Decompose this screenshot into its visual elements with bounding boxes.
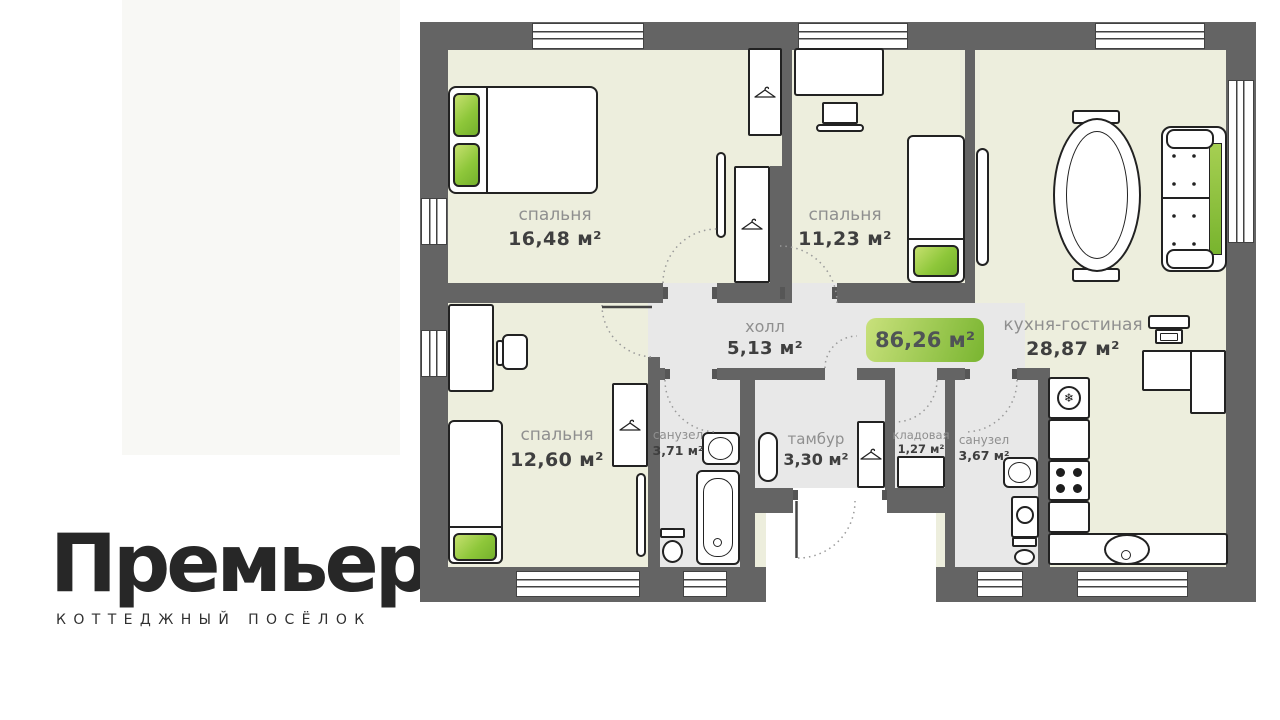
storage-shelf [897,456,945,488]
corner-cabinet [1190,350,1226,414]
room-area-vestibule: 3,30 м² [766,450,866,470]
sofa-armrest [1166,129,1214,149]
sofa-seat-divider [1163,197,1209,199]
doorway-floor [665,368,717,380]
door-post-marker [1012,369,1017,379]
pillow [453,93,480,137]
room-label-kitchen-living: кухня-гостиная [978,315,1168,336]
wall-segment [965,50,975,283]
room-area-kitchen-living: 28,87 м² [978,338,1168,362]
room-area-bedroom-top-left: 16,48 м² [480,228,630,252]
bed-divider [486,88,488,192]
window [421,198,447,245]
bed-divider [450,526,501,528]
room-label-bedroom-top-left: спальня [480,205,630,226]
room-label-bathroom-left: санузел [633,428,723,443]
sofa-back-cushion [1209,143,1222,255]
pillow [453,143,480,187]
page: Премьер КОТТЕДЖНЫЙ ПОСЁЛОК [0,0,1280,720]
mirror [716,152,726,238]
bench-chair [976,148,989,266]
wall-segment [782,50,792,168]
dining-table-inner [1066,131,1128,259]
room-label-bedroom-top-middle: спальня [770,205,920,226]
stove-burner-icon [1073,484,1082,493]
hanger-icon [740,216,764,232]
wall-segment [648,357,660,567]
wall-segment [448,283,663,303]
floor-plan: ❄ спальня 16,48 м² спальня 11,23 м² спал… [420,22,1256,602]
door-post-marker [712,369,717,379]
toilet-tank [1012,537,1037,547]
room-label-hall: холл [715,317,815,337]
snowflake-icon: ❄ [1057,386,1081,410]
wall-segment [887,488,950,513]
window [798,23,908,49]
stove-burner-icon [1056,484,1065,493]
entrance-porch [766,513,936,602]
toilet-tank [660,528,685,538]
wall-segment [945,368,955,567]
door-post-marker [712,287,717,299]
logo-subtitle: КОТТЕДЖНЫЙ ПОСЁЛОК [56,612,372,628]
room-area-bathroom-right: 3,67 м² [939,448,1029,464]
window [683,571,727,597]
doorway-floor [895,368,937,380]
wall-segment [740,368,755,567]
wall-outer-left [420,22,448,602]
room-area-hall: 5,13 м² [715,338,815,361]
toilet-bowl [662,540,683,563]
door-post-marker [665,369,670,379]
wall-segment [837,283,975,303]
background-panel [122,0,400,455]
kitchen-counter [1048,419,1090,460]
room-area-bathroom-left: 3,71 м² [633,443,723,459]
desk [448,304,494,392]
window [532,23,644,49]
window [421,330,447,377]
laptop [822,102,858,124]
room-label-bedroom-bottom-left: спальня [482,425,632,446]
kitchen-counter [1048,501,1090,533]
doorway-floor [663,283,717,303]
chair-back [496,340,504,366]
laptop-base [816,124,864,132]
bathtub-drain [713,538,722,547]
room-area-bedroom-top-middle: 11,23 м² [770,228,920,252]
mirror [636,473,646,557]
window [1077,571,1188,597]
window [977,571,1023,597]
door-post-marker [663,287,668,299]
hanger-icon [753,84,777,100]
doorway-floor [648,303,660,357]
door-post-marker [793,490,798,500]
logo-title: Премьер [50,524,428,604]
wall-segment [717,368,740,380]
chair [502,334,528,370]
doorway-floor [825,368,857,380]
window [1228,80,1254,243]
door-post-marker [965,369,970,379]
wall-segment [740,488,793,513]
doorway-floor [965,368,1017,380]
room-label-bathroom-right: санузел [939,433,1029,448]
toilet-bowl [1014,549,1035,565]
total-area-badge: 86,26 м² [866,318,984,362]
room-area-bedroom-bottom-left: 12,60 м² [482,449,632,473]
kitchen-sink-drain [1121,550,1131,560]
sink-basin [1008,462,1031,483]
sofa-armrest [1166,249,1214,269]
wall-segment [857,368,885,380]
pillow [453,533,497,561]
door-post-marker [882,490,887,500]
washer-drum [1016,506,1034,524]
stove [1048,460,1090,501]
room-label-vestibule: тамбур [766,430,866,449]
stove-burner-icon [1056,468,1065,477]
wall-segment [955,368,965,380]
desk [794,48,884,96]
door-post-marker [832,287,837,299]
wall-segment [755,368,825,380]
door-post-marker [780,287,785,299]
window [516,571,640,597]
window [1095,23,1205,49]
stove-burner-icon [1073,468,1082,477]
